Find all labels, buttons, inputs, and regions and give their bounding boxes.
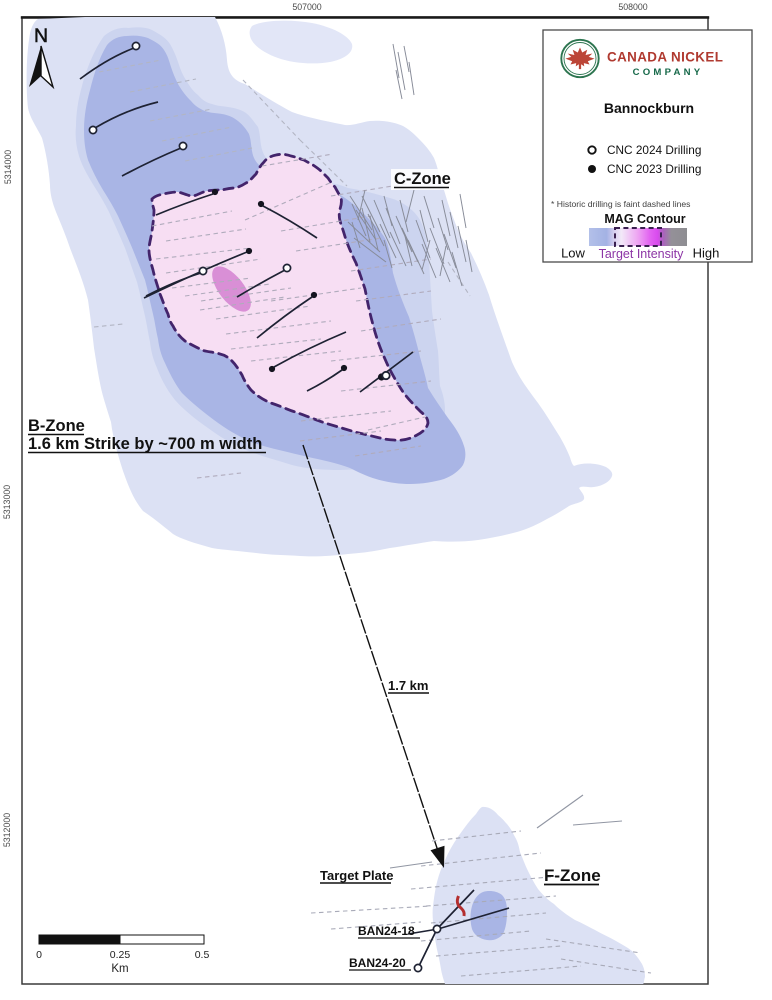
- svg-text:1.7 km: 1.7 km: [388, 678, 428, 693]
- svg-text:COMPANY: COMPANY: [633, 67, 704, 78]
- svg-text:B-Zone: B-Zone: [28, 417, 85, 435]
- svg-text:508000: 508000: [618, 2, 647, 12]
- svg-text:F-Zone: F-Zone: [544, 866, 601, 885]
- svg-text:0.5: 0.5: [195, 949, 210, 961]
- svg-text:5313000: 5313000: [2, 485, 12, 519]
- svg-text:High: High: [693, 246, 720, 261]
- svg-text:Low: Low: [561, 246, 585, 261]
- svg-text:C-Zone: C-Zone: [394, 170, 451, 188]
- svg-text:1.6 km Strike by ~700 m width: 1.6 km Strike by ~700 m width: [28, 435, 262, 453]
- svg-text:* Historic drilling is faint d: * Historic drilling is faint dashed line…: [551, 199, 690, 209]
- svg-text:N: N: [34, 25, 48, 47]
- svg-text:CNC 2023 Drilling: CNC 2023 Drilling: [607, 162, 701, 176]
- svg-text:BAN24-20: BAN24-20: [349, 956, 406, 970]
- svg-text:Target Plate: Target Plate: [320, 868, 393, 883]
- svg-text:5314000: 5314000: [3, 150, 13, 184]
- svg-text:MAG Contour: MAG Contour: [604, 212, 685, 226]
- svg-text:CANADA NICKEL: CANADA NICKEL: [607, 50, 723, 65]
- svg-text:Km: Km: [111, 963, 128, 975]
- svg-text:BAN24-18: BAN24-18: [358, 924, 415, 938]
- svg-text:507000: 507000: [292, 2, 321, 12]
- svg-text:Target Intensity: Target Intensity: [599, 247, 685, 261]
- svg-text:0.25: 0.25: [110, 949, 131, 961]
- svg-text:0: 0: [36, 949, 42, 961]
- svg-text:Bannockburn: Bannockburn: [604, 100, 694, 116]
- svg-text:5312000: 5312000: [2, 813, 12, 847]
- svg-text:CNC 2024 Drilling: CNC 2024 Drilling: [607, 143, 701, 157]
